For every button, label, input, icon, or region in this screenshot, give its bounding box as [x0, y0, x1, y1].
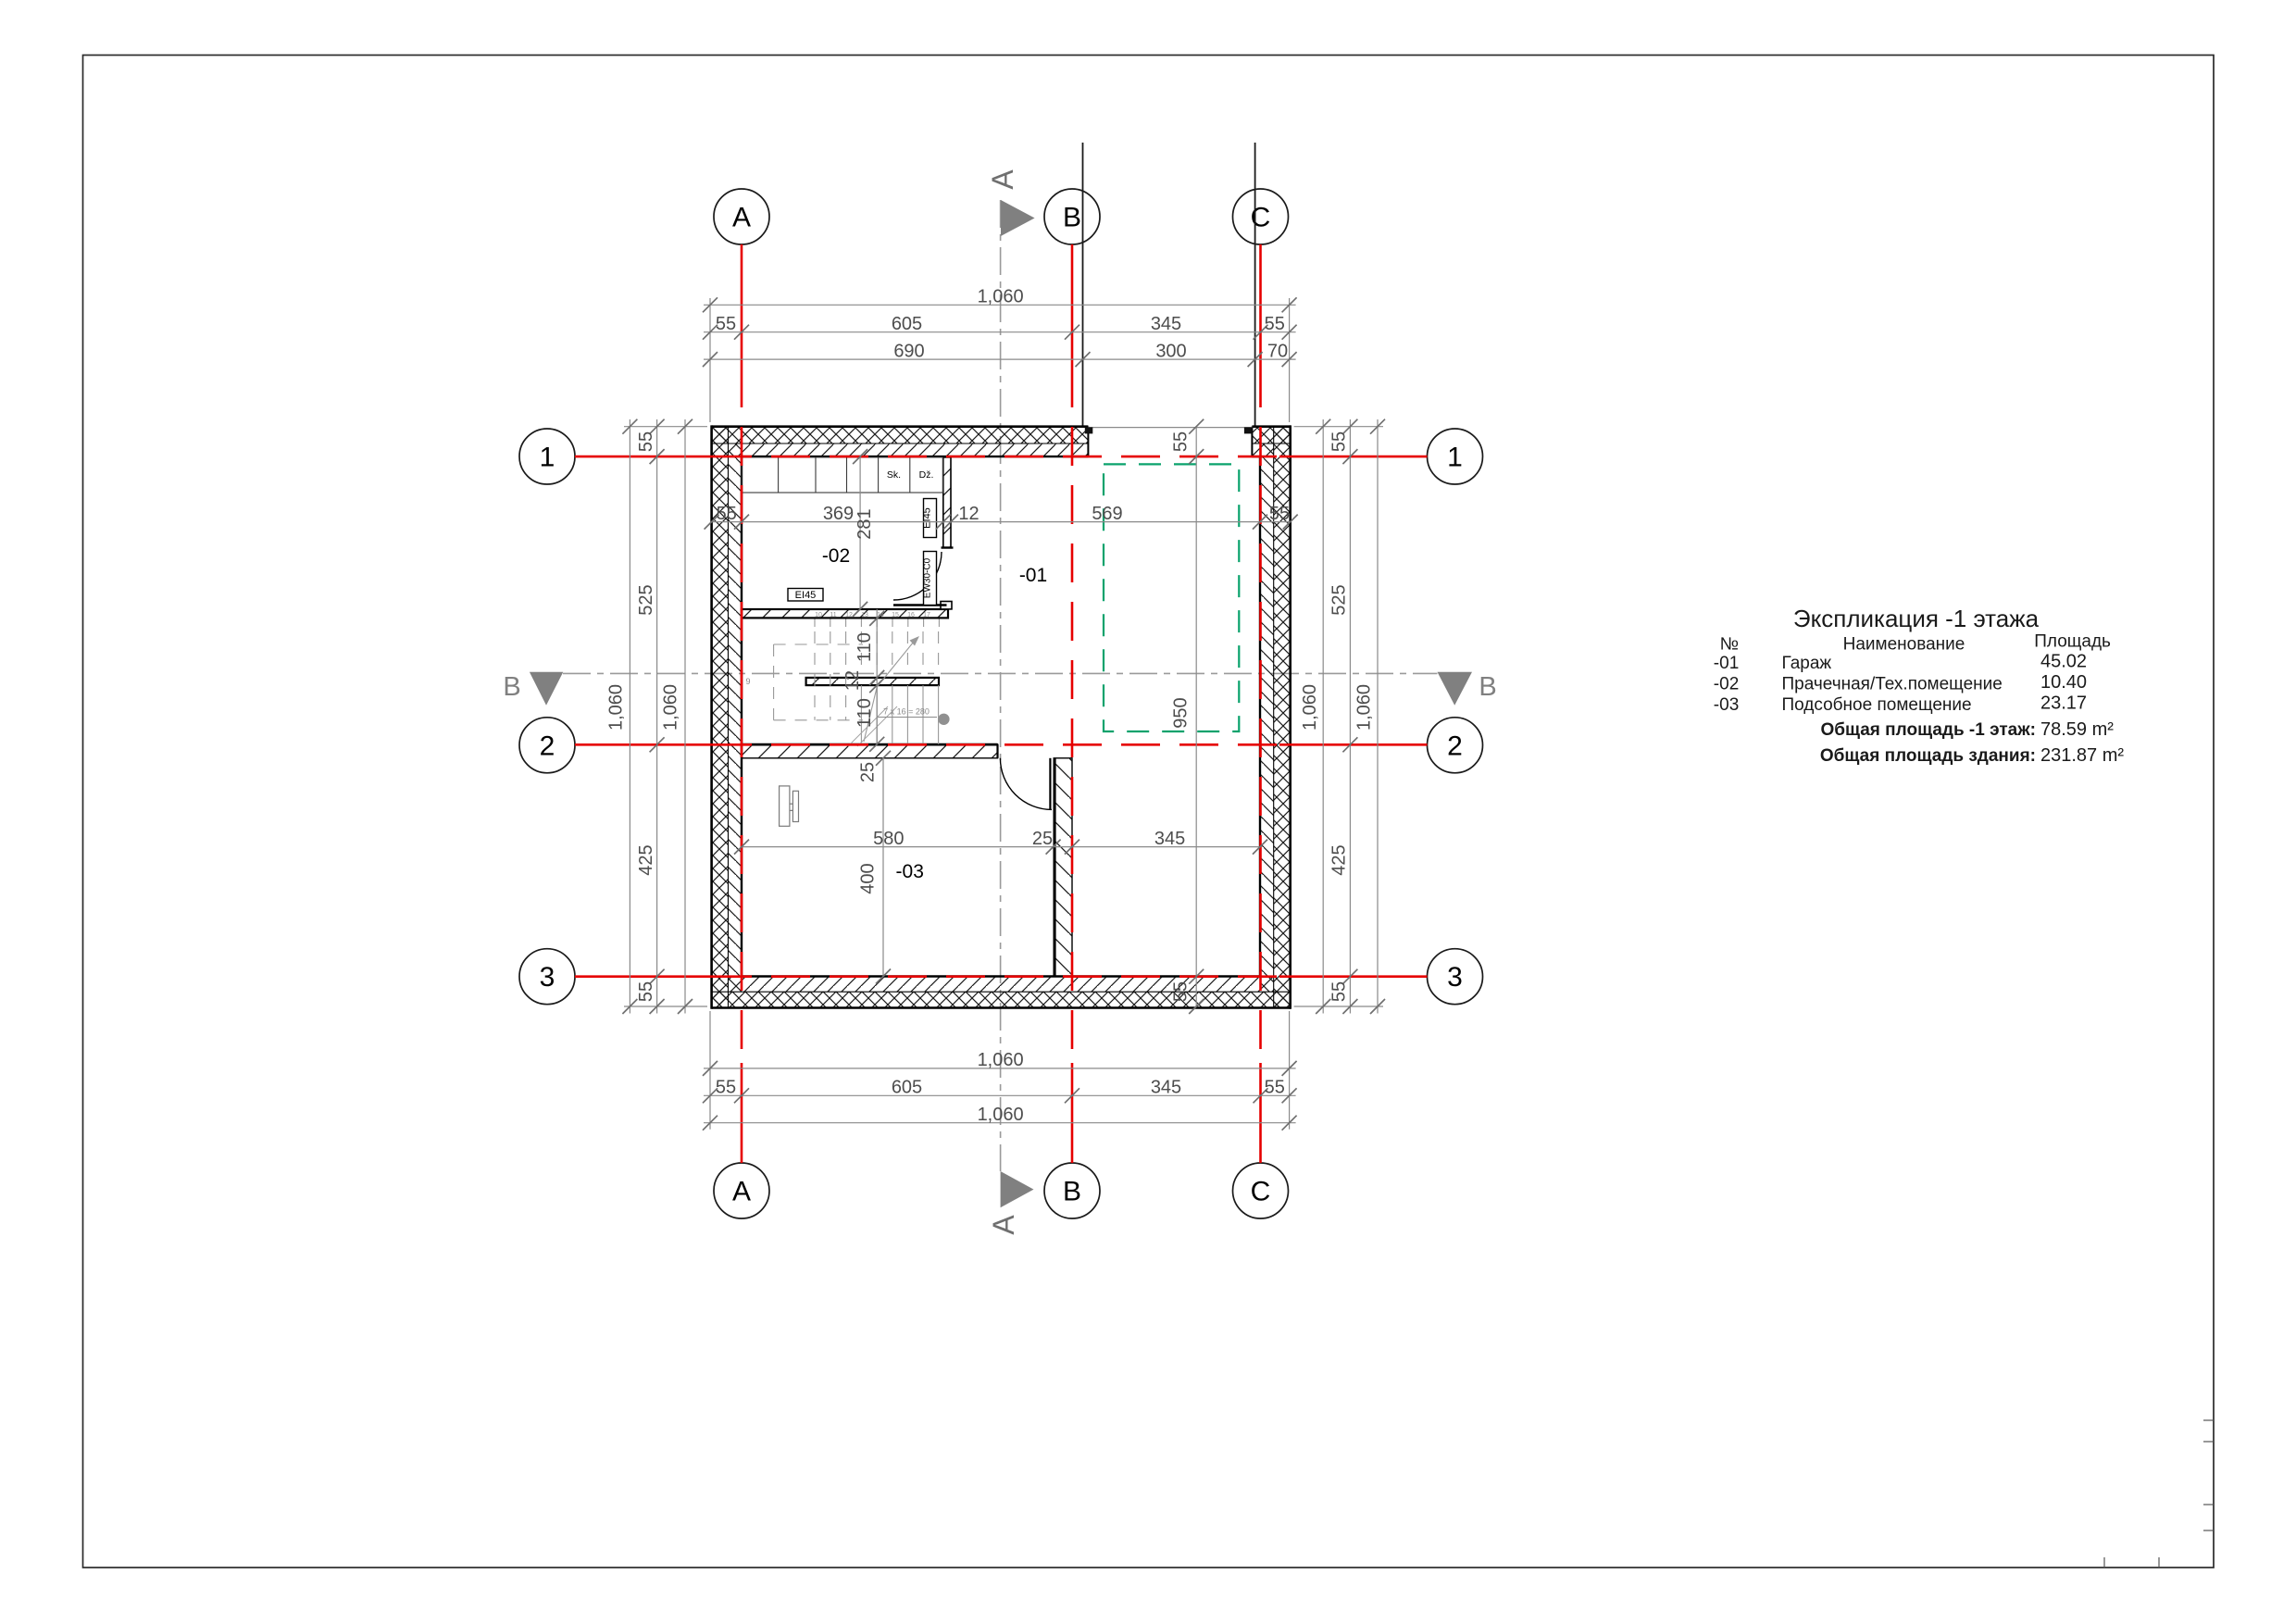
- svg-text:16: 16: [907, 612, 915, 618]
- svg-text:55: 55: [717, 504, 737, 524]
- svg-text:1: 1: [1447, 443, 1463, 473]
- svg-text:78.59 m²: 78.59 m²: [2040, 719, 2114, 740]
- svg-text:110: 110: [855, 632, 875, 662]
- svg-text:580: 580: [873, 829, 904, 849]
- svg-text:1,060: 1,060: [1354, 684, 1375, 731]
- svg-text:Гараж: Гараж: [1782, 654, 1832, 673]
- svg-text:-03: -03: [896, 861, 924, 882]
- svg-text:369: 369: [823, 504, 854, 524]
- svg-text:345: 345: [1151, 1078, 1181, 1098]
- svg-text:15: 15: [892, 612, 899, 618]
- svg-text:A: A: [987, 1215, 1020, 1235]
- svg-text:45.02: 45.02: [2040, 652, 2087, 672]
- svg-text:1,060: 1,060: [1300, 684, 1320, 731]
- svg-text:55: 55: [716, 1078, 736, 1098]
- svg-text:B: B: [1063, 203, 1081, 233]
- svg-text:55: 55: [1329, 981, 1350, 1002]
- svg-text:-03: -03: [1714, 695, 1739, 715]
- svg-text:110: 110: [855, 698, 875, 728]
- svg-text:55: 55: [1265, 1078, 1285, 1098]
- svg-text:2: 2: [1447, 731, 1463, 761]
- svg-text:425: 425: [636, 844, 656, 875]
- svg-text:Наименование: Наименование: [1843, 635, 1965, 655]
- svg-text:25: 25: [858, 762, 879, 782]
- svg-text:EI45: EI45: [795, 590, 817, 601]
- svg-text:Dž.: Dž.: [919, 469, 934, 481]
- svg-text:55: 55: [716, 314, 736, 334]
- svg-text:605: 605: [892, 1078, 922, 1098]
- svg-text:525: 525: [636, 584, 656, 615]
- svg-text:425: 425: [1329, 844, 1350, 875]
- svg-text:23.17: 23.17: [2040, 693, 2087, 714]
- svg-text:55: 55: [636, 981, 656, 1002]
- svg-text:Подсобное помещение: Подсобное помещение: [1782, 695, 1972, 715]
- svg-text:A: A: [986, 169, 1019, 190]
- svg-text:Площадь: Площадь: [2034, 632, 2111, 652]
- svg-text:569: 569: [1092, 504, 1122, 524]
- svg-text:55: 55: [1171, 431, 1192, 452]
- svg-text:-02: -02: [1714, 675, 1739, 694]
- svg-text:B: B: [1063, 1177, 1081, 1207]
- svg-text:70: 70: [1267, 342, 1288, 362]
- svg-text:3: 3: [540, 962, 555, 993]
- svg-text:345: 345: [1154, 829, 1185, 849]
- svg-text:B: B: [1479, 672, 1496, 702]
- svg-text:25: 25: [1032, 829, 1053, 849]
- svg-text:Sk.: Sk.: [887, 469, 901, 481]
- svg-text:525: 525: [1329, 584, 1350, 615]
- svg-text:-02: -02: [822, 545, 850, 567]
- svg-text:12: 12: [842, 670, 863, 691]
- svg-text:55: 55: [1171, 981, 1192, 1002]
- svg-text:7 x 16 = 280: 7 x 16 = 280: [883, 707, 930, 717]
- svg-text:13: 13: [861, 612, 868, 618]
- svg-text:11: 11: [830, 612, 836, 618]
- svg-text:№: №: [1720, 635, 1739, 655]
- svg-text:B: B: [503, 672, 520, 702]
- svg-text:55: 55: [1269, 504, 1290, 524]
- svg-text:-01: -01: [1019, 565, 1047, 586]
- svg-text:C: C: [1251, 1177, 1271, 1207]
- svg-text:55: 55: [1265, 314, 1285, 334]
- svg-text:Общая площадь -1 этаж:: Общая площадь -1 этаж:: [1820, 720, 2036, 740]
- svg-text:281: 281: [855, 508, 875, 539]
- svg-text:12: 12: [958, 504, 979, 524]
- svg-text:1,060: 1,060: [661, 684, 681, 731]
- svg-text:EW30-C0: EW30-C0: [923, 557, 933, 598]
- svg-text:Общая площадь здания:: Общая площадь здания:: [1820, 746, 2036, 766]
- svg-text:2: 2: [540, 731, 555, 761]
- svg-text:Прачечная/Тех.помещение: Прачечная/Тех.помещение: [1782, 675, 2003, 694]
- svg-text:231.87 m²: 231.87 m²: [2040, 745, 2124, 766]
- svg-text:12: 12: [845, 612, 853, 618]
- svg-text:A: A: [732, 1177, 751, 1207]
- svg-text:1,060: 1,060: [978, 1050, 1024, 1070]
- svg-text:345: 345: [1151, 314, 1181, 334]
- svg-text:1,060: 1,060: [978, 287, 1024, 307]
- svg-text:55: 55: [636, 431, 656, 452]
- svg-text:C: C: [1251, 203, 1271, 233]
- svg-text:17: 17: [923, 612, 930, 618]
- svg-text:9: 9: [745, 677, 750, 686]
- svg-text:3: 3: [1447, 962, 1463, 993]
- svg-text:10.40: 10.40: [2040, 672, 2087, 693]
- svg-text:1: 1: [540, 443, 555, 473]
- svg-text:Экспликация -1 этажа: Экспликация -1 этажа: [1793, 605, 2040, 632]
- svg-text:605: 605: [892, 314, 922, 334]
- svg-text:55: 55: [1329, 431, 1350, 452]
- svg-text:1,060: 1,060: [978, 1105, 1024, 1125]
- svg-text:690: 690: [893, 342, 924, 362]
- svg-text:1,060: 1,060: [606, 684, 627, 731]
- svg-text:300: 300: [1155, 342, 1186, 362]
- svg-text:EI45: EI45: [922, 507, 933, 529]
- svg-text:950: 950: [1171, 697, 1192, 728]
- svg-text:-01: -01: [1714, 654, 1739, 673]
- svg-text:10: 10: [815, 612, 822, 618]
- svg-text:A: A: [732, 203, 751, 233]
- svg-text:400: 400: [858, 863, 879, 893]
